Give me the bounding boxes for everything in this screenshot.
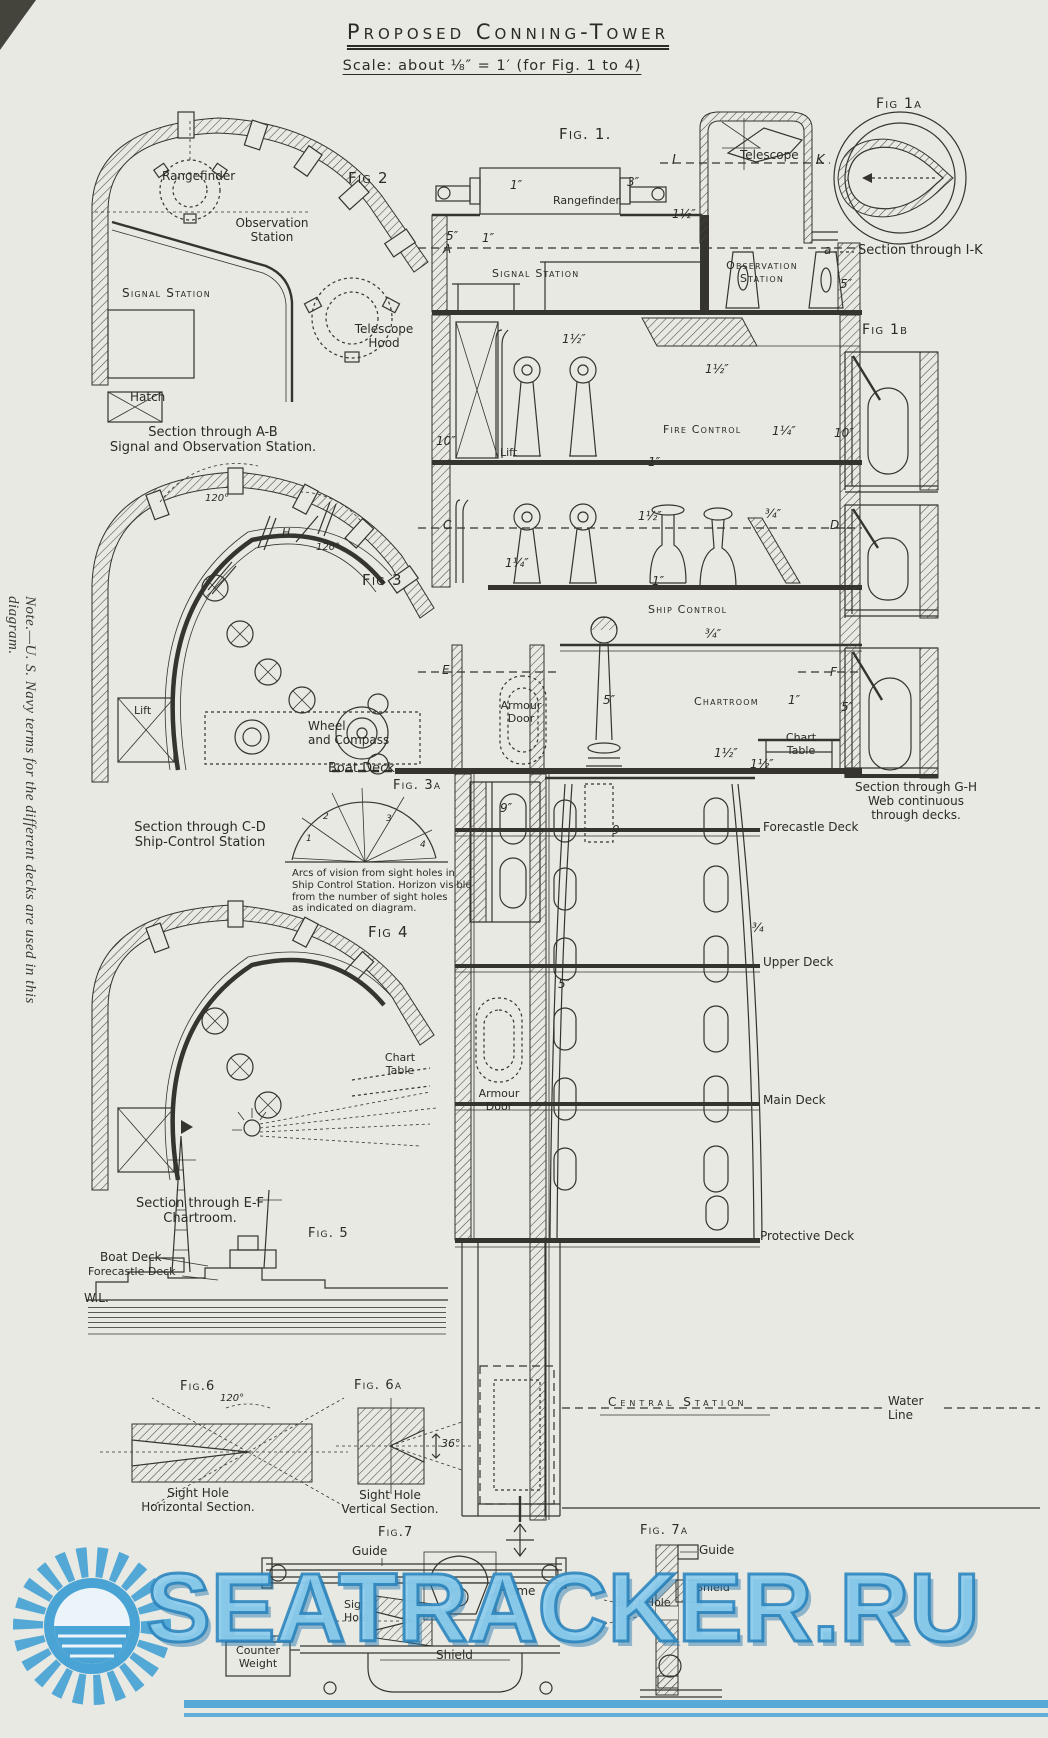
fig4-label: Fig 4 — [368, 924, 409, 942]
fig1-ship-control-label: Ship Control — [648, 604, 727, 617]
caption-section-gh: Section through G-H Web continuous throu… — [855, 780, 977, 822]
dim-3quarter-fig1b: ¾″ — [765, 507, 781, 521]
dim-5in-obs: 5″ — [840, 277, 852, 291]
fig2-drawing — [92, 112, 428, 422]
upper-deck-label: Upper Deck — [763, 955, 833, 969]
fig2-hatch-label: Hatch — [130, 390, 165, 404]
caption-section-ef: Section through E-F Chartroom. — [136, 1196, 264, 1227]
dim-1half-firecontrol-right: 1½″ — [705, 362, 729, 376]
fig1-chart-table-label: Chart Table — [786, 732, 816, 758]
line-art — [0, 0, 1048, 1738]
caption-fig6a: Sight Hole Vertical Section. — [341, 1488, 438, 1516]
fig5-forecastle-deck-label: Forecastle Deck — [88, 1266, 176, 1279]
fig1-elevation-drawing — [332, 112, 862, 774]
fig3a-label: Fig. 3a — [393, 778, 441, 793]
fig1-lower-drawing — [455, 774, 1040, 1556]
fig3-lift-label: Lift — [134, 705, 151, 718]
fig1-chartroom-label: Chartroom — [694, 696, 759, 709]
fig7a-label: Fig. 7a — [640, 1523, 688, 1538]
caption-section-ik: Section through I-K — [858, 243, 983, 258]
fig7-label: Fig.7 — [378, 1525, 414, 1540]
fig1a-drawing — [834, 112, 966, 252]
margin-note: Note.—U. S. Navy terms for the different… — [16, 596, 38, 1056]
fan-1: 1 — [306, 834, 312, 845]
fig1-armour-door-upper-label: Armour Door — [501, 700, 542, 726]
fig1-telescope-label: Telescope — [740, 148, 799, 162]
fig4-drawing — [92, 901, 436, 1190]
dim-1in-shipcontrol: 1″ — [652, 574, 664, 588]
dim-1half-roof: 1½″ — [672, 207, 696, 221]
fig1-lift-label: Lift — [500, 447, 517, 460]
fig1-armour-door-lower-label: Armour Door — [479, 1088, 520, 1114]
dim-3quarter-upperdeck: ¾ — [752, 921, 764, 935]
fig1-rangefinder-label: Rangefinder — [553, 195, 620, 208]
fig2-label: Fig 2 — [348, 170, 389, 188]
fig1a-label: Fig 1a — [876, 96, 922, 113]
caption-section-cd: Section through C-D Ship-Control Station — [134, 820, 265, 851]
dim-1half-forecastle: 1½″ — [750, 757, 774, 771]
fig6a-label: Fig. 6a — [354, 1378, 402, 1393]
scan-corner-mark — [0, 0, 36, 50]
forecastle-deck-label: Forecastle Deck — [763, 820, 858, 834]
dim-1half-shipcontrol: 1½″ — [638, 509, 662, 523]
drawing-sheet: Proposed Conning-Tower Scale: about ⅛″ =… — [0, 0, 1048, 1738]
central-station-label: Central Station — [608, 1395, 748, 1409]
marker-d: D — [830, 518, 839, 532]
fig3-label: Fig 3 — [362, 572, 403, 590]
dim-3quarter-floor: ¾″ — [705, 627, 721, 641]
fig5-boat-deck-label: Boat Deck — [100, 1250, 162, 1264]
fig1-observation-station-label: Observation Station — [726, 260, 798, 286]
dim-1in-chartroom: 1″ — [788, 693, 800, 707]
fig1b-label: Fig 1b — [862, 322, 908, 339]
marker-a-small: a — [824, 243, 831, 257]
dim-1half-firecontrol-left: 1½″ — [562, 332, 586, 346]
fig1-signal-station-label: Signal Station — [492, 268, 579, 281]
marker-f: F — [830, 665, 837, 679]
dim-1quarter-fig1b: 1¼″ — [772, 424, 796, 438]
dim-5in-tube: 5″ — [558, 977, 570, 991]
caption-section-ab: Section through A-B Signal and Observati… — [110, 425, 316, 456]
dim-1in-rangefinder: 1″ — [510, 178, 522, 192]
marker-k: K — [816, 153, 825, 168]
marker-a-left: A — [443, 242, 451, 256]
fig3a-note: Arcs of vision from sight holes in Ship … — [292, 868, 472, 915]
sheet-scale-note: Scale: about ⅛″ = 1′ (for Fig. 1 to 4) — [343, 58, 642, 74]
dim-1in-wall-top: 1″ — [482, 231, 494, 245]
fig2-telescope-hood-label: Telescope Hood — [355, 322, 414, 350]
fig6-label: Fig.6 — [180, 1379, 216, 1394]
fan-4: 4 — [420, 840, 426, 851]
fig2-rangefinder-label: Rangefinder — [162, 169, 235, 183]
water-line-label: Water Line — [888, 1394, 923, 1422]
caption-fig6: Sight Hole Horizontal Section. — [141, 1486, 254, 1514]
boat-deck-label: Boat Deck — [328, 761, 395, 776]
sheet-title: Proposed Conning-Tower — [347, 20, 669, 44]
fig1-label: Fig. 1. — [559, 126, 612, 144]
dim-9-tube: 9 — [612, 823, 620, 837]
watermark-underline-thin — [184, 1713, 1048, 1717]
watermark-underline-thick — [184, 1700, 1048, 1708]
fig5-drawing — [86, 1120, 448, 1334]
dim-10in-fig1b: 10″ — [834, 426, 854, 440]
angle-36-fig6a: 36° — [441, 1438, 461, 1451]
fig5-label: Fig. 5 — [308, 1226, 349, 1241]
protective-deck-label: Protective Deck — [760, 1229, 854, 1243]
angle-120-fig6: 120° — [220, 1393, 244, 1405]
watermark-text: SEATRACKER.RU — [146, 1552, 1048, 1664]
dim-3in-rangefinder: 3″ — [627, 175, 639, 189]
dim-1quarter-wall: 1¼″ — [505, 556, 529, 570]
marker-c: C — [443, 518, 451, 532]
angle-120-fig3-b: 120° — [316, 542, 340, 554]
fig3-wheel-compass-label: Wheel and Compass — [308, 719, 389, 747]
angle-120-fig3-a: 120° — [205, 493, 229, 505]
fig4-chart-table-label: Chart Table — [385, 1052, 415, 1078]
main-deck-label: Main Deck — [763, 1093, 826, 1107]
dim-5in-right-wall: 5″ — [841, 700, 853, 714]
marker-i: I — [672, 153, 676, 168]
dim-5in-chartroom-wall: 5″ — [603, 693, 615, 707]
fan-2: 2 — [323, 812, 329, 823]
fig2-signal-station-label: Signal Station — [122, 286, 211, 300]
marker-e: E — [442, 663, 450, 677]
dim-1half-boatdeck: 1½″ — [714, 746, 738, 760]
wl-label: W.L. — [84, 1291, 109, 1305]
dim-1in-firecontrol: 1″ — [648, 455, 660, 469]
fig1-fire-control-label: Fire Control — [663, 424, 741, 437]
fig2-observation-station-label: Observation Station — [235, 216, 308, 244]
fan-3: 3 — [386, 814, 392, 825]
dim-10in-wall: 10″ — [436, 434, 456, 448]
marker-h: H — [282, 527, 290, 540]
dim-9in-tube: 9″ — [500, 801, 512, 815]
